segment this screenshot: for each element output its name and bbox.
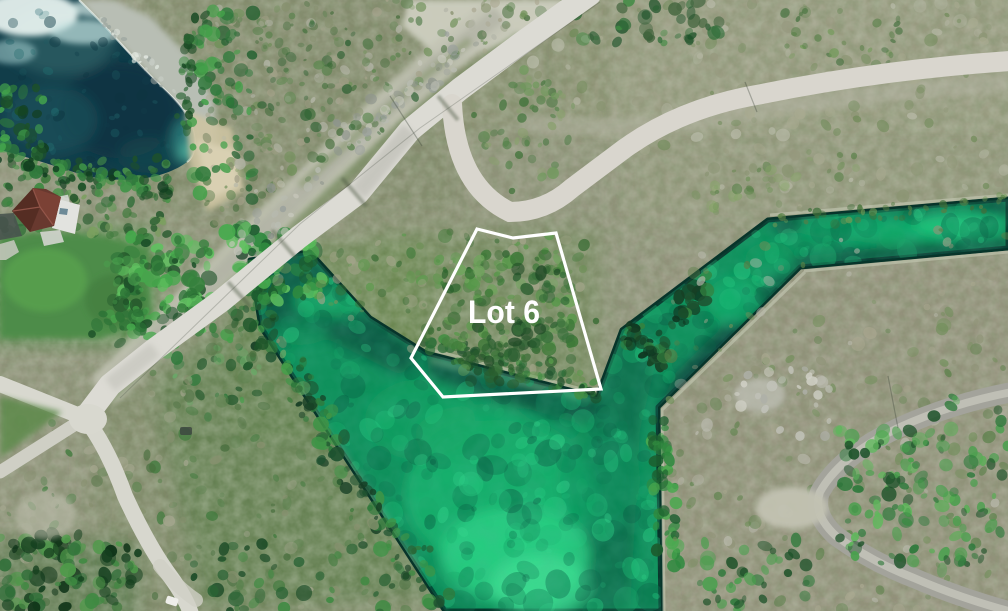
svg-text:Lot 6: Lot 6 — [468, 294, 540, 330]
